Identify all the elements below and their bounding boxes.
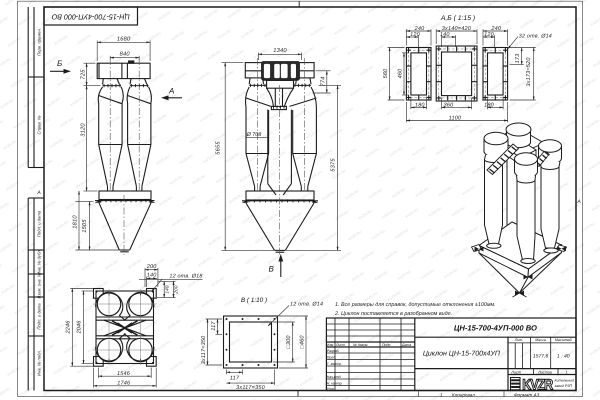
svg-text:Котельный: Котельный [555, 379, 575, 383]
svg-text:117: 117 [230, 376, 240, 382]
svg-text:□460: □460 [300, 335, 306, 349]
svg-text:180: 180 [484, 102, 495, 108]
svg-text:ЦН-15-700-4УП-000 ВО: ЦН-15-700-4УП-000 ВО [454, 324, 537, 333]
svg-text:Т. контр.: Т. контр. [327, 362, 342, 366]
svg-text:Подп.: Подп. [382, 343, 391, 347]
svg-text:560: 560 [383, 68, 389, 79]
svg-text:3х117=350: 3х117=350 [201, 335, 207, 365]
svg-text:1546: 1546 [117, 371, 131, 377]
svg-text:Инв. № подл.: Инв. № подл. [37, 350, 42, 376]
svg-text:Нач.отд.: Нач.отд. [327, 375, 342, 379]
svg-text:Формат А3: Формат А3 [514, 392, 540, 397]
svg-text:Подп. и дата: Подп. и дата [37, 303, 42, 330]
svg-text:200: 200 [146, 264, 158, 270]
svg-text:А: А [168, 87, 174, 96]
svg-text:3х117=350: 3х117=350 [236, 385, 266, 391]
svg-text:3120: 3120 [80, 123, 86, 137]
svg-text:завод РЗП: завод РЗП [554, 384, 573, 388]
svg-text:Изм: Изм [327, 343, 334, 347]
svg-text:А: А [576, 199, 581, 205]
svg-text:725: 725 [80, 69, 86, 80]
svg-text:117: 117 [211, 321, 217, 331]
svg-text:□300: □300 [286, 335, 292, 349]
svg-text:Ø 708: Ø 708 [246, 132, 262, 138]
svg-text:Листов: Листов [537, 370, 552, 374]
svg-text:5375: 5375 [330, 158, 336, 172]
svg-text:12 отв. Ø14: 12 отв. Ø14 [290, 301, 323, 307]
svg-text:А: А [36, 190, 41, 196]
svg-text:1: 1 [440, 392, 443, 397]
svg-text:1505: 1505 [82, 219, 88, 233]
svg-text:3х173=520: 3х173=520 [526, 57, 532, 87]
svg-text:Масса: Масса [535, 338, 546, 342]
svg-text:Утв.: Утв. [327, 387, 335, 391]
svg-text:Лист: Лист [510, 370, 521, 374]
svg-text:140: 140 [440, 32, 451, 38]
svg-text:Перв. примен.: Перв. примен. [37, 28, 42, 56]
svg-text:1340: 1340 [273, 48, 287, 54]
svg-text:360: 360 [444, 102, 455, 108]
svg-text:1. Все размеры для справок, до: 1. Все размеры для справок, допустимые о… [335, 302, 496, 308]
svg-text:№ докум.: № докум. [353, 343, 368, 347]
svg-text:Лит.: Лит. [514, 338, 523, 342]
svg-text:Подп. и дата: Подп. и дата [37, 210, 42, 237]
svg-text:KVZR: KVZR [522, 377, 553, 393]
svg-text:120: 120 [484, 32, 495, 38]
svg-text:Дата: Дата [401, 343, 411, 347]
svg-text:Проб.: Проб. [327, 355, 336, 359]
svg-text:Инв. № дубл.: Инв. № дубл. [37, 249, 42, 275]
svg-text:Копировал: Копировал [452, 392, 475, 397]
svg-text:460: 460 [397, 68, 403, 79]
svg-text:В ( 1:10 ): В ( 1:10 ) [241, 297, 267, 304]
svg-text:Справ. №: Справ. № [37, 115, 42, 134]
svg-text:120: 120 [410, 32, 421, 38]
svg-text:140: 140 [164, 285, 169, 294]
svg-text:ЦН-15-700-4УП-000 ВО: ЦН-15-700-4УП-000 ВО [51, 12, 129, 21]
svg-text:В: В [269, 265, 275, 274]
svg-text:5655: 5655 [216, 141, 222, 155]
svg-text:1 : 40: 1 : 40 [557, 354, 570, 360]
svg-text:Взам. инв. №: Взам. инв. № [37, 272, 42, 298]
svg-text:Циклон ЦН-15-700х4УП: Циклон ЦН-15-700х4УП [423, 351, 501, 358]
svg-text:173: 173 [515, 53, 521, 64]
svg-text:200: 200 [173, 285, 178, 295]
svg-text:140: 140 [147, 273, 158, 279]
svg-text:Лист: Лист [335, 343, 345, 347]
svg-text:1810: 1810 [73, 215, 79, 229]
svg-text:1746: 1746 [117, 381, 131, 387]
svg-text:180: 180 [415, 102, 426, 108]
svg-text:1: 1 [565, 370, 567, 374]
svg-text:Разраб.: Разраб. [327, 349, 340, 353]
svg-text:2246: 2246 [65, 320, 71, 335]
svg-text:Б: Б [57, 59, 62, 68]
svg-text:Масштаб: Масштаб [555, 338, 573, 342]
svg-text:12 отв. Ø18: 12 отв. Ø18 [169, 273, 202, 279]
svg-text:774: 774 [320, 76, 326, 86]
svg-text:2046: 2046 [77, 320, 83, 335]
svg-text:840: 840 [120, 52, 131, 58]
svg-text:2. Циклон поставляется в разоб: 2. Циклон поставляется в разобранном вид… [334, 311, 452, 317]
svg-text:1680: 1680 [117, 36, 131, 42]
svg-text:Н. контр.: Н. контр. [327, 381, 343, 385]
svg-text:32 отв. Ø14: 32 отв. Ø14 [519, 33, 552, 39]
svg-text:1577,6: 1577,6 [533, 354, 549, 360]
svg-text:1100: 1100 [449, 115, 462, 121]
svg-text:А,Б ( 1:15 ): А,Б ( 1:15 ) [440, 15, 475, 22]
